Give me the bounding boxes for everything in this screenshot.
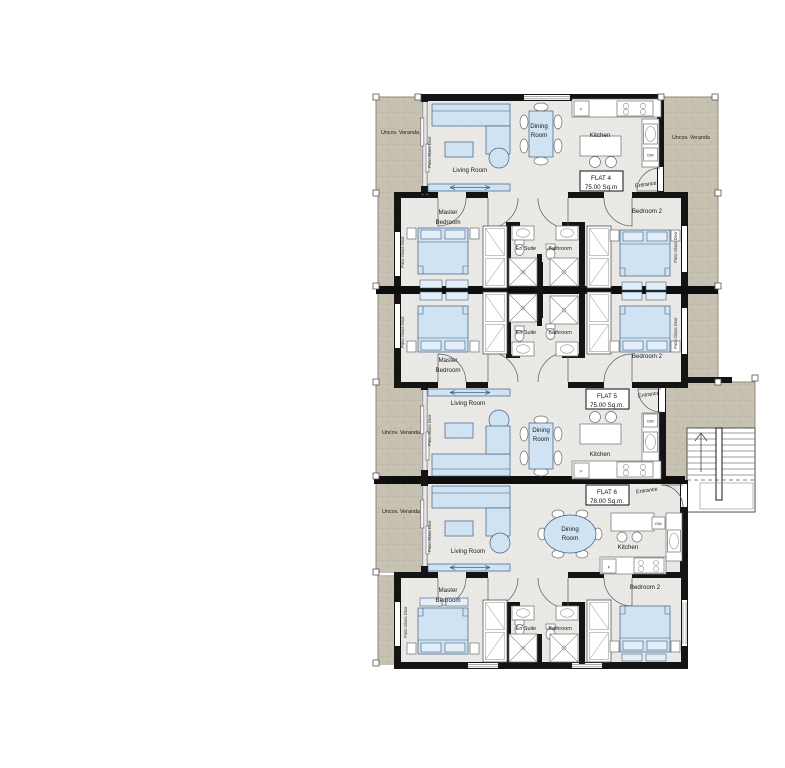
flat5-bathroom-label: Bathroom <box>548 330 572 336</box>
flat4-living-label: Living Room <box>453 167 487 174</box>
flat4-bed2-bed <box>620 230 670 276</box>
patio-door-label: Patio Glass Door <box>673 317 678 349</box>
flat5-kitchen-label: Kitchen <box>590 451 611 458</box>
flat5-ensuite-label: En Suite <box>516 330 536 336</box>
flat6-area: 78.00 Sq.m. <box>590 498 624 505</box>
flat5-living-label: Living Room <box>451 400 485 407</box>
patio-door-label: Patio Glass Door <box>403 606 408 638</box>
flat4-coffee-table <box>445 142 473 157</box>
patio-door-label: Patio Glass Door <box>427 136 432 168</box>
flat6-dining-label-2: Room <box>562 535 579 542</box>
flat6-island <box>611 513 654 531</box>
flat4-armchair <box>489 148 509 168</box>
veranda-label: Uncov. Veranda <box>381 130 419 136</box>
flat4-master-wardrobe <box>483 226 507 288</box>
patio-door-label: Patio Glass Door <box>427 414 432 446</box>
veranda-label: Uncov. Veranda <box>382 509 420 515</box>
flat4-bathroom-label: Bathroom <box>548 246 572 252</box>
patio-door-label: Patio Glass Door <box>400 236 405 268</box>
flat4-ensuite-label: En Suite <box>516 246 536 252</box>
flat5-master-wardrobe <box>483 292 507 354</box>
flat5-coffee-table <box>445 423 473 438</box>
flat5-dw-label: DW <box>647 419 654 424</box>
flat4-name: FLAT 4 <box>591 175 612 182</box>
flat5-master-label-2: Bedroom <box>435 367 460 374</box>
flat4-master-bed <box>418 228 468 274</box>
flat6-armchair <box>490 533 510 553</box>
flat4-dw-label: DW <box>647 153 654 158</box>
flat5-dining-label-1: Dining <box>532 427 550 434</box>
flat5-name: FLAT 5 <box>597 393 618 400</box>
flat6-sofa-chaise <box>486 508 510 536</box>
flat4-kitchen-label: Kitchen <box>590 132 611 139</box>
flat6-dining-label-1: Dining <box>561 526 579 533</box>
flat4-dining-label-1: Dining <box>530 123 548 130</box>
flat5-dining-label-2: Room <box>533 436 550 443</box>
patio-door-label: Patio Glass Door <box>400 316 405 348</box>
flat4-dining-label-2: Room <box>531 132 548 139</box>
flat4-bed2-label: Bedroom 2 <box>632 208 663 215</box>
flat4-island <box>580 136 621 156</box>
patio-door-label: Patio Glass Door <box>673 231 678 263</box>
flat6-name: FLAT 6 <box>597 489 618 496</box>
veranda-label: Uncov. Veranda <box>382 430 420 436</box>
flat6-coffee-table <box>445 521 473 536</box>
flat6-living-label: Living Room <box>451 548 485 555</box>
flat5-bed2-bed <box>620 306 670 352</box>
patio-door-label: Patio Glass Door <box>427 520 432 552</box>
flat5-master-bed <box>418 306 468 352</box>
flat6-master-wardrobe <box>483 600 507 662</box>
flat6-ensuite-label: En Suite <box>516 626 536 632</box>
flat4-master-label-1: Master <box>439 209 458 216</box>
flat6-dw-label: DW <box>655 521 662 526</box>
flat5-master-label-1: Master <box>439 357 458 364</box>
flat5-sofa <box>432 454 510 476</box>
flat4-bed2-wardrobe <box>587 226 611 288</box>
flat5-bed2-label: Bedroom 2 <box>632 353 663 360</box>
flat4-area: 75.00 Sq.m <box>585 184 617 191</box>
floor-plan: Uncov. Veranda Uncov. Veranda Uncov. Ver… <box>0 0 785 768</box>
flat6-sofa <box>432 486 510 508</box>
flat5-area: 75.00 Sq.m. <box>590 402 624 409</box>
flat6-kitchen-label: Kitchen <box>618 544 639 551</box>
flat6-master-bed <box>418 608 468 654</box>
flat5-island <box>580 424 621 444</box>
flat6-bed2-wardrobe <box>587 600 611 662</box>
flat6-master-label-2: Bedroom <box>435 597 460 604</box>
flat6-master-label-1: Master <box>439 587 458 594</box>
flat5-sofa-chaise <box>486 426 510 454</box>
flat4-master-label-2: Bedroom <box>435 219 460 226</box>
veranda-label: Uncov. Veranda <box>672 135 710 141</box>
flat6-bathroom-label: Bathroom <box>548 626 572 632</box>
flat5-bed2-wardrobe <box>587 292 611 354</box>
flat4-sofa <box>432 104 510 126</box>
flat6-bed2-bed <box>620 606 670 652</box>
flat6-bed2-label: Bedroom 2 <box>630 584 661 591</box>
